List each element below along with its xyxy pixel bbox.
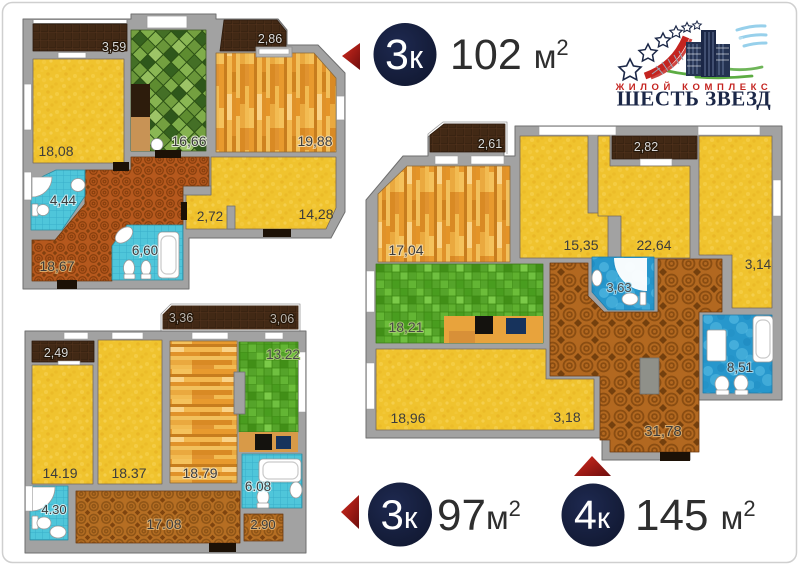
svg-text:2,49: 2,49 <box>44 346 68 360</box>
svg-text:102 м2: 102 м2 <box>450 31 569 79</box>
svg-text:2,61: 2,61 <box>478 137 502 151</box>
svg-text:19,88: 19,88 <box>297 133 332 149</box>
svg-text:18,08: 18,08 <box>38 143 73 159</box>
svg-text:3,36: 3,36 <box>169 311 193 325</box>
svg-text:2,82: 2,82 <box>634 140 658 154</box>
svg-text:18,67: 18,67 <box>39 258 74 274</box>
svg-text:16,66: 16,66 <box>171 133 206 149</box>
svg-text:2.90: 2.90 <box>250 517 275 532</box>
svg-text:6,60: 6,60 <box>132 243 158 258</box>
svg-text:145 м2: 145 м2 <box>635 491 756 540</box>
svg-text:18.37: 18.37 <box>111 465 146 481</box>
svg-text:17.08: 17.08 <box>146 516 181 532</box>
svg-text:14.19: 14.19 <box>42 465 77 481</box>
svg-text:97м2: 97м2 <box>437 491 521 540</box>
svg-text:3,18: 3,18 <box>553 409 580 425</box>
svg-text:31,78: 31,78 <box>644 423 682 440</box>
svg-text:3,06: 3,06 <box>270 312 294 326</box>
svg-text:18,96: 18,96 <box>390 410 425 426</box>
svg-text:4,44: 4,44 <box>50 193 77 208</box>
svg-text:6.08: 6.08 <box>245 479 271 494</box>
svg-text:2,72: 2,72 <box>197 209 223 224</box>
svg-text:3к: 3к <box>385 31 424 79</box>
svg-text:15,35: 15,35 <box>563 237 598 253</box>
svg-text:4.30: 4.30 <box>41 502 66 517</box>
svg-text:13.22: 13.22 <box>266 347 300 362</box>
svg-text:ШЕСТЬ ЗВЕЗД: ШЕСТЬ ЗВЕЗД <box>617 87 772 111</box>
svg-text:8,51: 8,51 <box>727 360 753 375</box>
svg-text:17,04: 17,04 <box>388 242 423 258</box>
svg-text:18,21: 18,21 <box>388 319 423 335</box>
svg-text:3,63: 3,63 <box>606 280 631 295</box>
svg-text:22,64: 22,64 <box>636 237 671 253</box>
svg-text:3,14: 3,14 <box>745 257 772 272</box>
svg-text:3,59: 3,59 <box>102 40 126 54</box>
svg-text:14,28: 14,28 <box>298 206 333 222</box>
svg-text:2,86: 2,86 <box>258 32 282 46</box>
svg-text:18.79: 18.79 <box>182 465 217 481</box>
